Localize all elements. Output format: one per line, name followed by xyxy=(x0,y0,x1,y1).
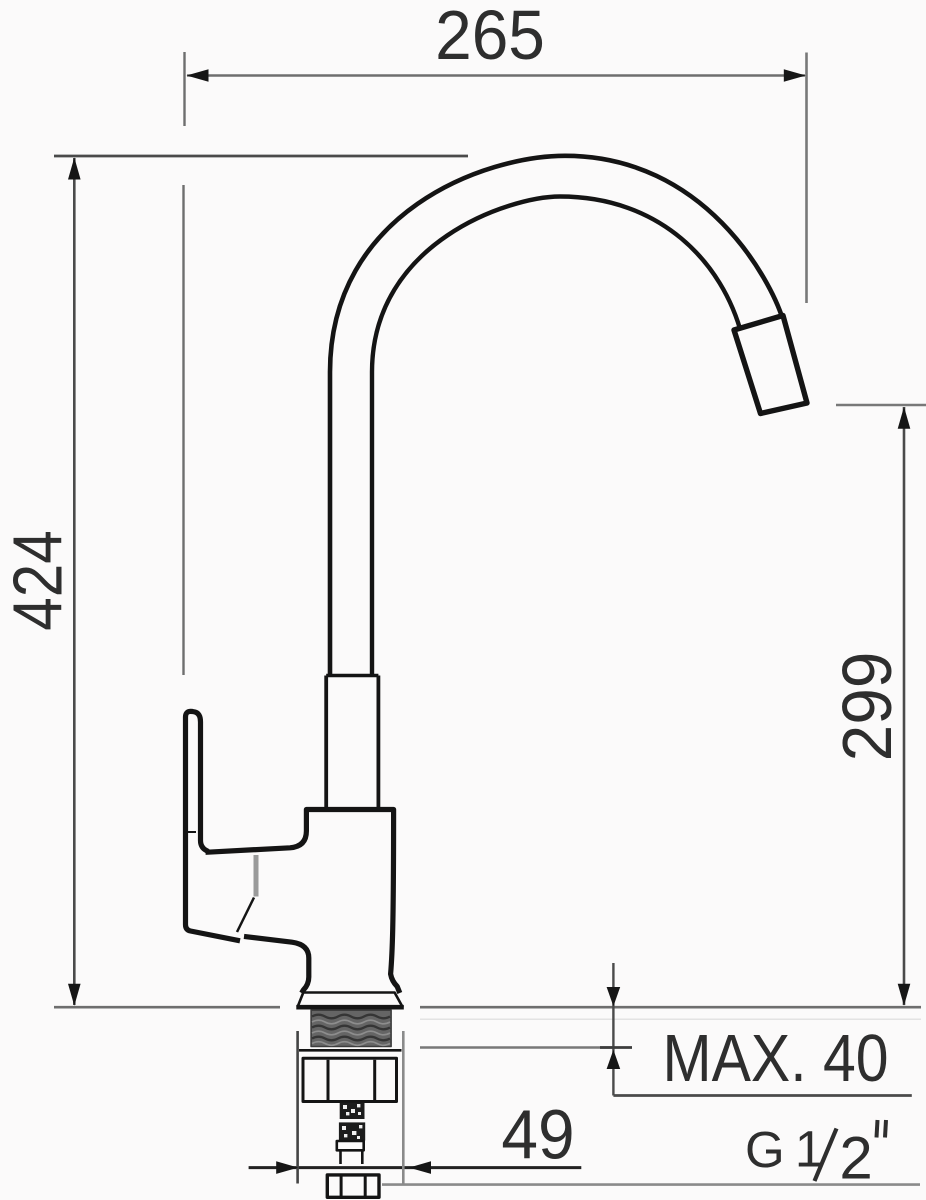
svg-text:G: G xyxy=(745,1121,785,1178)
svg-text:MAX. 40: MAX. 40 xyxy=(662,1022,888,1096)
svg-text:299: 299 xyxy=(829,652,906,762)
svg-text:2: 2 xyxy=(839,1125,872,1192)
svg-text:49: 49 xyxy=(501,1097,574,1174)
svg-text:265: 265 xyxy=(435,0,545,74)
svg-text:424: 424 xyxy=(0,530,77,630)
